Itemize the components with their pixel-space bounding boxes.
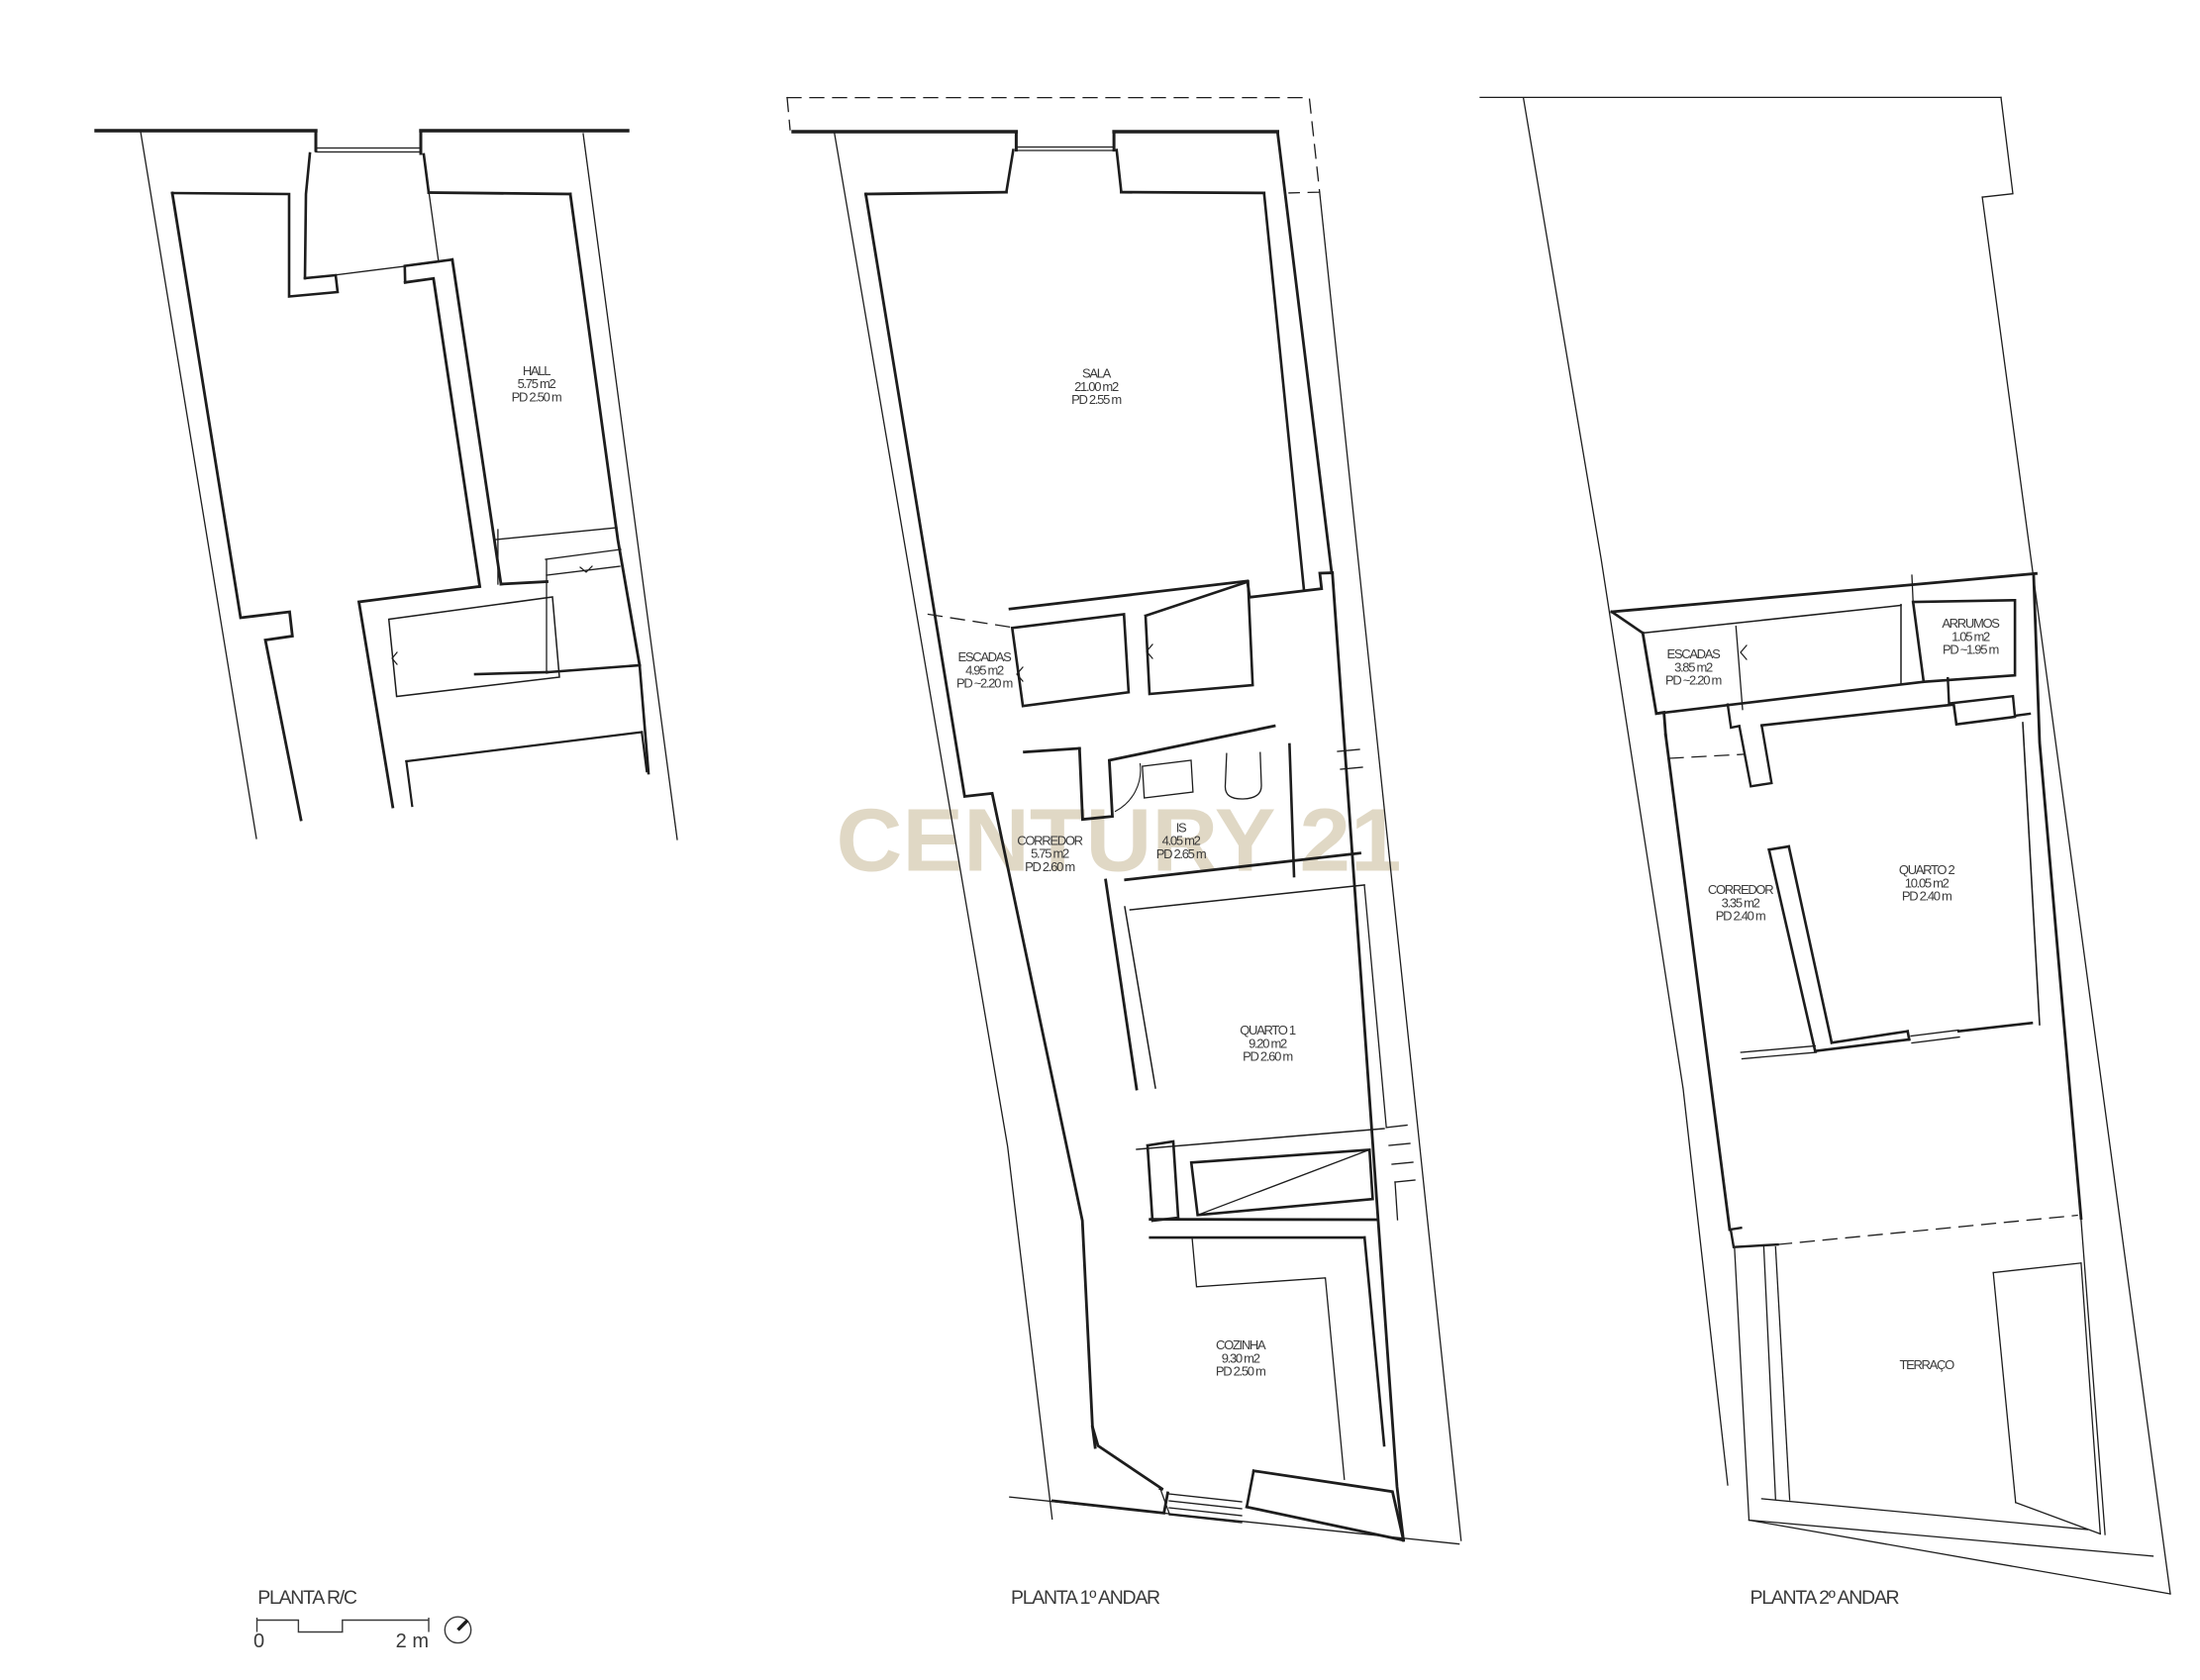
svg-text:PD 2.65 m: PD 2.65 m bbox=[1156, 846, 1206, 861]
svg-text:PD 2.50 m: PD 2.50 m bbox=[1216, 1364, 1265, 1379]
svg-text:PLANTA R/C: PLANTA R/C bbox=[257, 1587, 357, 1609]
svg-text:PD 2.50 m: PD 2.50 m bbox=[512, 389, 561, 404]
svg-text:PD ~2.20 m: PD ~2.20 m bbox=[1665, 673, 1721, 688]
svg-text:PD 2.55 m: PD 2.55 m bbox=[1071, 392, 1121, 407]
svg-text:PD 2.60 m: PD 2.60 m bbox=[1025, 859, 1074, 874]
svg-text:2 m: 2 m bbox=[396, 1631, 429, 1652]
svg-text:0: 0 bbox=[253, 1631, 264, 1652]
svg-text:PD ~2.20 m: PD ~2.20 m bbox=[956, 676, 1012, 691]
svg-text:PLANTA 1º ANDAR: PLANTA 1º ANDAR bbox=[1011, 1587, 1160, 1609]
svg-text:PD 2.40 m: PD 2.40 m bbox=[1716, 909, 1765, 924]
svg-text:TERRAÇO: TERRAÇO bbox=[1899, 1357, 1954, 1372]
svg-text:PD 2.60 m: PD 2.60 m bbox=[1243, 1049, 1292, 1064]
svg-text:PD ~1.95 m: PD ~1.95 m bbox=[1943, 642, 1998, 657]
svg-text:PLANTA 2º ANDAR: PLANTA 2º ANDAR bbox=[1750, 1587, 1900, 1609]
svg-text:CENTURY 21: CENTURY 21 bbox=[837, 791, 1402, 890]
svg-text:PD 2.40 m: PD 2.40 m bbox=[1902, 889, 1951, 904]
